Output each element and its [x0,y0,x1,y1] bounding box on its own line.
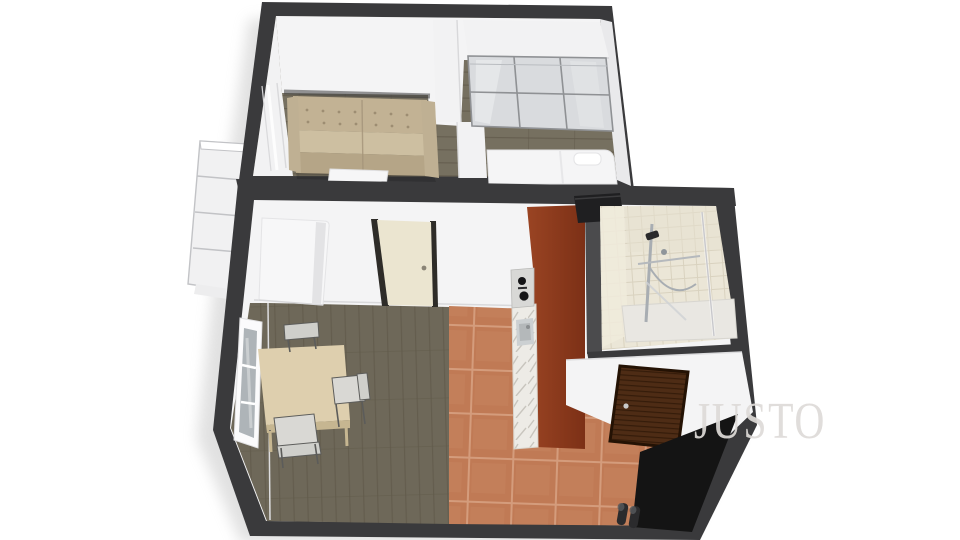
bathroom-north-wall-shade [624,206,722,252]
stove [511,268,534,308]
floor-plan-image: JUSTO [0,0,960,540]
partition-wall-upper [433,20,461,122]
dining-kitchen-area [213,183,757,540]
bed-pillow [574,153,601,165]
bathroom [600,206,737,350]
wardrobe-top-panel [463,20,609,58]
entrance-door-handle [623,403,628,408]
sofa [287,96,439,182]
kitchen-bathroom-wall [585,204,602,354]
door-handle [422,266,427,271]
white-cabinet [259,218,329,305]
interior-door [371,219,438,307]
bedroom-living-area [238,2,634,190]
shower-tray [622,299,737,342]
floor-plan-svg [0,0,960,540]
sliding-door-wardrobe [463,20,613,131]
entrance-door-slab [610,366,688,448]
bed [487,150,617,184]
shower-valve [661,249,667,255]
partition-wall-lower [457,122,487,178]
entrance-door [610,366,688,448]
kitchen-sink [516,318,534,346]
